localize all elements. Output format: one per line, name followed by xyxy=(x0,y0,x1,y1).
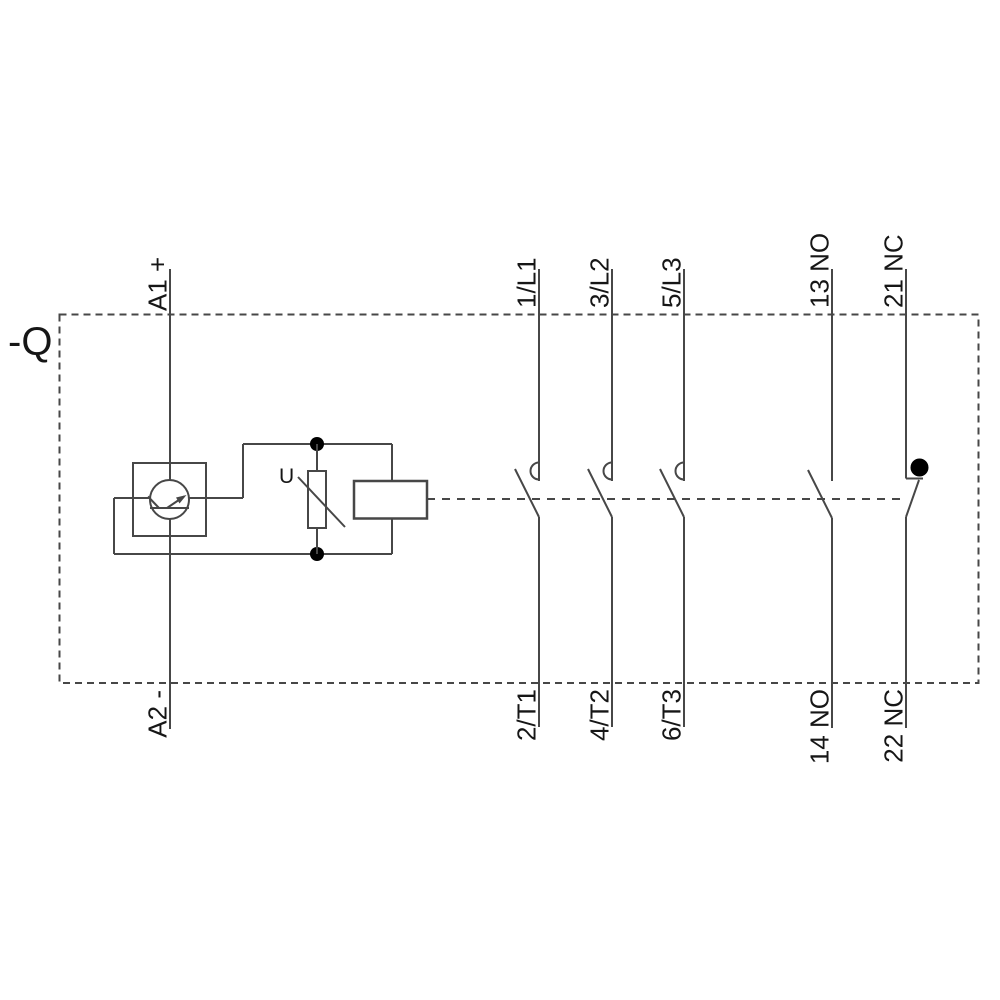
terminal-label-3l2: 3/L2 xyxy=(585,257,615,308)
electronic-module xyxy=(114,463,243,536)
terminal-label-a1: A1 + xyxy=(143,257,173,311)
contactor-schematic: -Q A1 + A2 - U xyxy=(0,0,1000,1000)
emitter-arrow-icon xyxy=(176,495,187,504)
transistor-symbol-icon xyxy=(148,495,189,508)
transistor-circle xyxy=(150,480,189,519)
terminal-label-a2: A2 - xyxy=(143,690,173,738)
aux-no-contact-blade xyxy=(808,470,832,518)
terminal-label-2t1: 2/T1 xyxy=(512,689,542,741)
varistor-diagonal xyxy=(298,477,345,527)
varistor-label: U xyxy=(279,465,294,488)
terminal-label-13no: 13 NO xyxy=(805,233,835,308)
terminal-label-6t3: 6/T3 xyxy=(657,689,687,741)
terminal-label-4t2: 4/T2 xyxy=(585,689,615,741)
schematic-page: -Q A1 + A2 - U xyxy=(0,0,1000,1000)
pole2-contact-arc xyxy=(604,463,613,480)
terminal-label-5l3: 5/L3 xyxy=(657,257,687,308)
pole2-contact-blade xyxy=(588,469,612,517)
varistor: U xyxy=(279,444,345,554)
coil-box xyxy=(354,481,427,519)
terminal-label-21nc: 21 NC xyxy=(879,234,909,308)
pole1-contact-arc xyxy=(531,463,540,480)
pole1-contact-blade xyxy=(515,469,539,517)
terminal-label-14no: 14 NO xyxy=(805,689,835,764)
device-label: -Q xyxy=(8,320,52,364)
coil-circuit-wiring xyxy=(114,437,392,561)
varistor-body xyxy=(308,471,326,528)
terminal-label-22nc: 22 NC xyxy=(879,689,909,763)
pole3-contact-arc xyxy=(676,463,685,480)
contactor-coil xyxy=(354,444,427,554)
terminal-label-1l1: 1/L1 xyxy=(512,257,542,308)
aux-nc-contact-blade xyxy=(906,480,919,517)
aux-nc-dot xyxy=(911,459,929,477)
pole3-contact-blade xyxy=(660,469,684,517)
